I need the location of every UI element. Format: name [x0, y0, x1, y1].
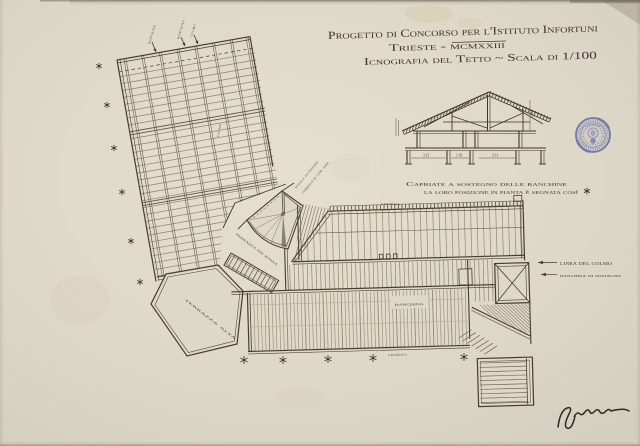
svg-text:la loro posizione in pianta è: la loro posizione in pianta è segnata co… [424, 190, 579, 196]
svg-text:grondaia: grondaia [381, 201, 401, 206]
svg-text:1.63: 1.63 [456, 154, 462, 158]
svg-text:3.13: 3.13 [423, 154, 429, 158]
svg-text:3.10: 3.10 [530, 112, 534, 118]
svg-text:banchina di sostegno: banchina di sostegno [560, 273, 622, 278]
svg-text:banchina: banchina [395, 301, 426, 307]
svg-text:linea del colmo: linea del colmo [560, 262, 612, 267]
svg-text:grondaia: grondaia [388, 352, 408, 358]
svg-text:Capriate a sostegno delle banc: Capriate a sostegno delle banchine [406, 182, 568, 188]
svg-text:3.13: 3.13 [492, 154, 498, 158]
